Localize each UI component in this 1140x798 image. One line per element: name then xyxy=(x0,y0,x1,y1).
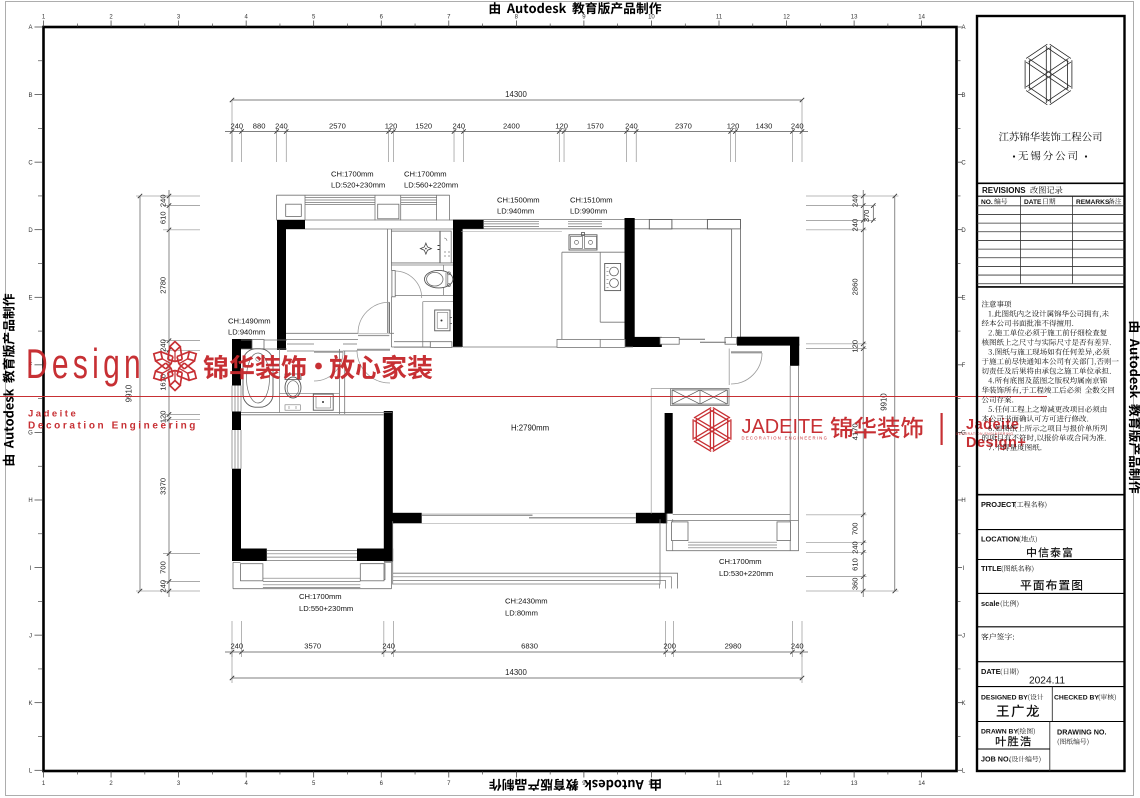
svg-text:14300: 14300 xyxy=(505,90,527,99)
svg-text:2400: 2400 xyxy=(503,122,520,131)
svg-text:DATE: DATE xyxy=(1024,199,1042,206)
svg-text:200: 200 xyxy=(663,642,676,651)
svg-text:G: G xyxy=(28,431,33,437)
svg-text:610: 610 xyxy=(159,211,168,224)
svg-text:LD:550+230mm: LD:550+230mm xyxy=(299,604,353,613)
svg-text:12: 12 xyxy=(783,781,790,787)
svg-text:REVISIONS: REVISIONS xyxy=(982,186,1026,195)
svg-text:120: 120 xyxy=(851,340,860,353)
svg-text:700: 700 xyxy=(851,522,860,535)
svg-text:13: 13 xyxy=(851,15,858,21)
svg-text:6830: 6830 xyxy=(521,642,538,651)
svg-text:D: D xyxy=(28,228,33,234)
svg-text:240: 240 xyxy=(851,219,860,232)
svg-text:11: 11 xyxy=(716,15,723,21)
svg-text:K: K xyxy=(961,701,965,707)
svg-text:LD:940mm: LD:940mm xyxy=(228,328,265,337)
svg-text:3370: 3370 xyxy=(159,478,168,495)
svg-text:C: C xyxy=(961,160,966,166)
svg-text:H: H xyxy=(28,498,32,504)
svg-text:TITLE: TITLE xyxy=(981,564,1002,573)
svg-text:240: 240 xyxy=(275,122,288,131)
svg-text:LD:80mm: LD:80mm xyxy=(505,609,538,618)
svg-text:DECORATION ENGINEERING: DECORATION ENGINEERING xyxy=(742,436,829,441)
svg-text:E: E xyxy=(961,295,965,301)
svg-text:CH:1700mm: CH:1700mm xyxy=(719,557,762,566)
svg-text:240: 240 xyxy=(851,541,860,554)
svg-text:B: B xyxy=(28,93,32,99)
svg-text:240: 240 xyxy=(452,122,465,131)
svg-text:LOCATION: LOCATION xyxy=(981,535,1019,544)
svg-text:CH:1700mm: CH:1700mm xyxy=(404,170,447,179)
svg-text:LD:560+220mm: LD:560+220mm xyxy=(404,181,458,190)
svg-text:240: 240 xyxy=(791,122,804,131)
svg-text:14300: 14300 xyxy=(505,668,527,677)
svg-text:240: 240 xyxy=(230,642,243,651)
svg-text:120: 120 xyxy=(385,122,398,131)
svg-text:H: H xyxy=(961,498,965,504)
svg-text:14: 14 xyxy=(918,781,925,787)
svg-text:14: 14 xyxy=(918,15,925,21)
svg-text:Design: Design xyxy=(26,340,145,387)
svg-text:E: E xyxy=(28,295,32,301)
svg-text:3570: 3570 xyxy=(304,642,321,651)
svg-text:700: 700 xyxy=(159,561,168,574)
svg-text:240: 240 xyxy=(851,194,860,207)
svg-text:610: 610 xyxy=(851,558,860,571)
svg-text:240: 240 xyxy=(230,122,243,131)
svg-text:240: 240 xyxy=(159,580,168,593)
svg-text:240: 240 xyxy=(159,339,168,352)
svg-text:360: 360 xyxy=(851,578,860,591)
svg-text:CH:1510mm: CH:1510mm xyxy=(570,196,613,205)
svg-text:LD:940mm: LD:940mm xyxy=(497,207,534,216)
svg-text:scale: scale xyxy=(981,599,1000,608)
svg-text:J: J xyxy=(29,633,32,639)
svg-text:CH:1700mm: CH:1700mm xyxy=(331,170,374,179)
svg-text:B: B xyxy=(961,93,965,99)
svg-text:120: 120 xyxy=(727,122,740,131)
svg-text:DRAWN BY: DRAWN BY xyxy=(981,729,1018,736)
svg-text:11: 11 xyxy=(716,781,723,787)
svg-text:Jadeite: Jadeite xyxy=(28,409,78,420)
svg-text:1570: 1570 xyxy=(587,122,604,131)
svg-text:DATE: DATE xyxy=(981,667,1001,676)
svg-text:240: 240 xyxy=(625,122,638,131)
svg-text:LD:990mm: LD:990mm xyxy=(570,207,607,216)
svg-text:10: 10 xyxy=(648,15,655,21)
svg-text:240: 240 xyxy=(159,194,168,207)
svg-text:A: A xyxy=(28,25,32,31)
svg-text:2024.11: 2024.11 xyxy=(1029,676,1065,687)
svg-text:F: F xyxy=(962,363,966,369)
svg-text:PROJECT: PROJECT xyxy=(981,500,1016,509)
svg-text:CH:2430mm: CH:2430mm xyxy=(505,597,548,606)
svg-text:LD:520+230mm: LD:520+230mm xyxy=(331,181,385,190)
svg-text:REMARKS: REMARKS xyxy=(1076,199,1110,206)
svg-text:1610: 1610 xyxy=(159,374,168,391)
svg-text:K: K xyxy=(28,701,32,707)
svg-text:12: 12 xyxy=(783,15,790,21)
svg-text:NO.: NO. xyxy=(981,199,993,206)
svg-text:13: 13 xyxy=(851,781,858,787)
svg-text:C: C xyxy=(28,160,33,166)
svg-text:2570: 2570 xyxy=(329,122,346,131)
svg-text:CHECKED BY: CHECKED BY xyxy=(1054,695,1099,702)
svg-text:240: 240 xyxy=(382,642,395,651)
svg-text:JOB NO.: JOB NO. xyxy=(981,755,1011,764)
svg-text:120: 120 xyxy=(555,122,568,131)
svg-text:CH:1490mm: CH:1490mm xyxy=(228,317,271,326)
svg-text:2370: 2370 xyxy=(675,122,692,131)
svg-text:880: 880 xyxy=(253,122,266,131)
svg-text:2980: 2980 xyxy=(725,642,742,651)
svg-text:D: D xyxy=(961,228,966,234)
svg-text:LD:530+220mm: LD:530+220mm xyxy=(719,569,773,578)
svg-text:J: J xyxy=(962,633,965,639)
svg-text:DESIGNED BY: DESIGNED BY xyxy=(981,695,1028,702)
svg-text:9910: 9910 xyxy=(880,393,889,411)
svg-text:1520: 1520 xyxy=(415,122,432,131)
svg-text:1430: 1430 xyxy=(755,122,772,131)
svg-text:2780: 2780 xyxy=(159,277,168,294)
svg-text:Decoration Engineering: Decoration Engineering xyxy=(28,421,198,432)
svg-text:H:2790mm: H:2790mm xyxy=(511,424,549,433)
svg-text:CH:1700mm: CH:1700mm xyxy=(299,592,342,601)
svg-text:240: 240 xyxy=(791,642,804,651)
svg-text:DRAWING NO.: DRAWING NO. xyxy=(1057,728,1107,737)
svg-text:CH:1500mm: CH:1500mm xyxy=(497,196,540,205)
svg-text:370: 370 xyxy=(862,210,871,223)
svg-text:A: A xyxy=(961,25,965,31)
svg-text:2860: 2860 xyxy=(851,278,860,295)
